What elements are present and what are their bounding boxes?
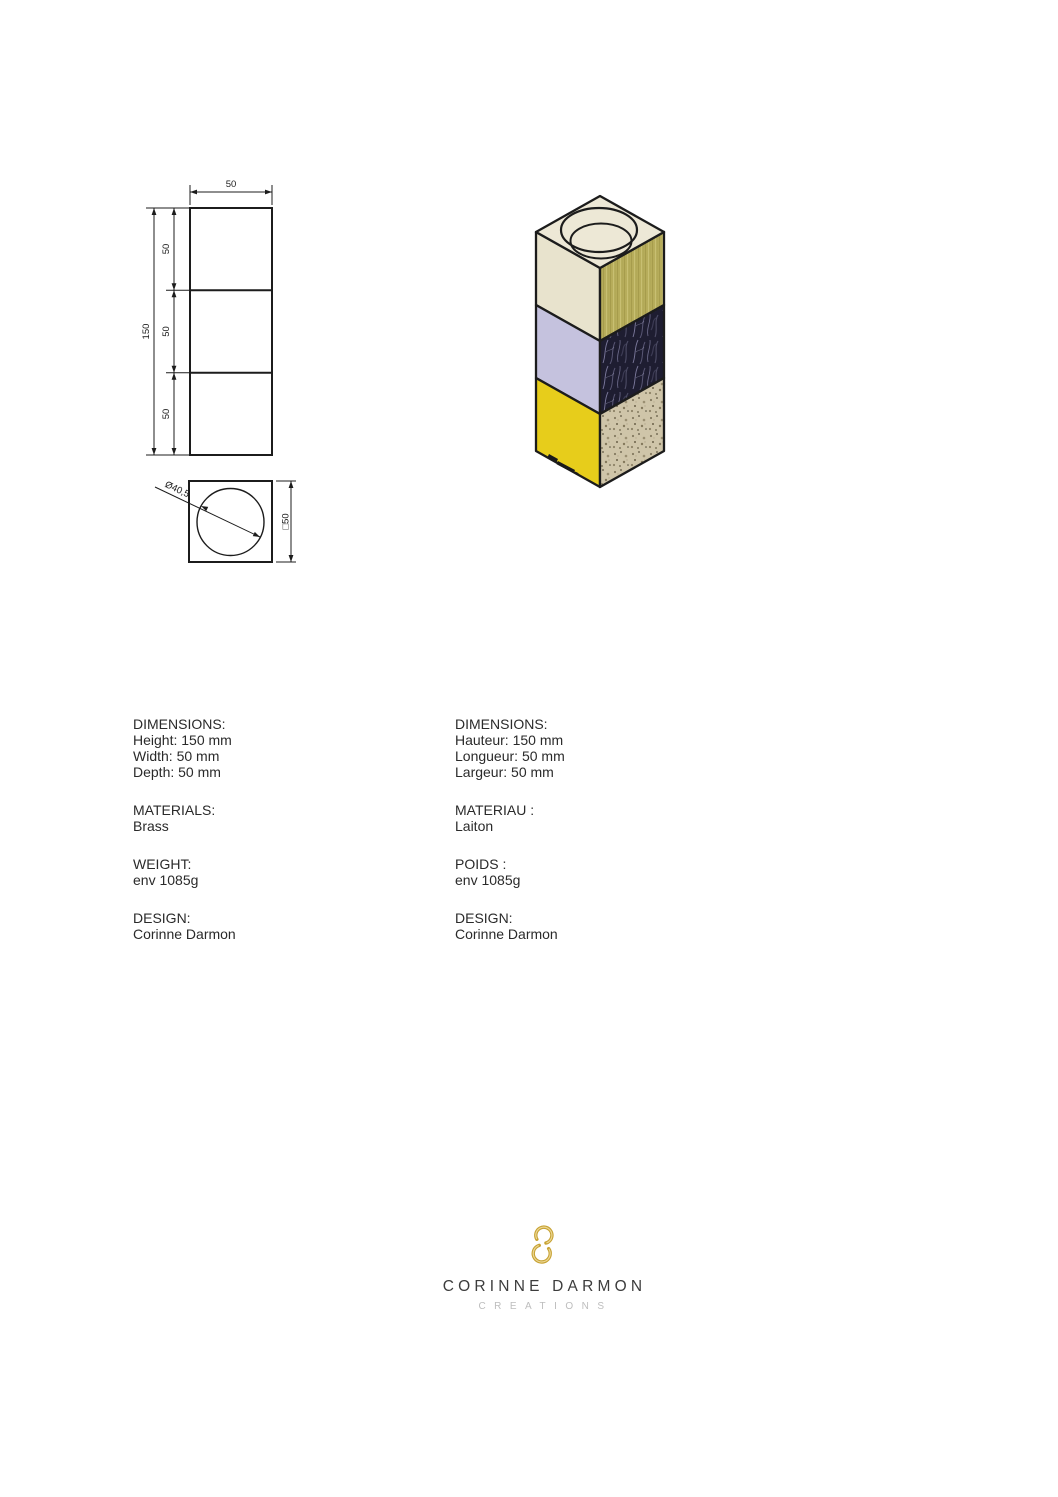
spec-title: DIMENSIONS: <box>455 716 565 732</box>
bottom-view-bore-circle <box>197 489 264 556</box>
spec-title: DESIGN: <box>455 910 565 926</box>
spec-block-materials: MATERIALS: Brass <box>133 802 236 834</box>
isometric-product-render <box>536 196 664 487</box>
spec-value: Corinne Darmon <box>455 926 565 942</box>
spec-value: Laiton <box>455 818 565 834</box>
spec-title: POIDS : <box>455 856 565 872</box>
spec-sheet-page: 50 150 50 50 50 Ø40,5 □50 <box>0 0 1058 1497</box>
spec-value: Brass <box>133 818 236 834</box>
front-total-height-label: 150 <box>141 324 152 340</box>
front-section2-label: 50 <box>161 326 172 337</box>
spec-title: DESIGN: <box>133 910 236 926</box>
spec-block-dimensions: DIMENSIONS: Hauteur: 150 mm Longueur: 50… <box>455 716 565 780</box>
spec-block-weight: WEIGHT: env 1085g <box>133 856 236 888</box>
spec-block-weight: POIDS : env 1085g <box>455 856 565 888</box>
brand-subtitle: CREATIONS <box>418 1301 673 1312</box>
spec-block-design: DESIGN: Corinne Darmon <box>133 910 236 942</box>
specs-french: DIMENSIONS: Hauteur: 150 mm Longueur: 50… <box>455 716 565 964</box>
spec-block-dimensions: DIMENSIONS: Height: 150 mm Width: 50 mm … <box>133 716 236 780</box>
bottom-view-square <box>189 481 272 562</box>
square-side-label: □50 <box>281 513 292 529</box>
gold-chain-links-icon <box>526 1220 560 1270</box>
front-section3-label: 50 <box>161 409 172 420</box>
spec-value: Height: 150 mm <box>133 732 236 748</box>
spec-block-materials: MATERIAU : Laiton <box>455 802 565 834</box>
spec-value: Depth: 50 mm <box>133 764 236 780</box>
front-view-body <box>190 208 272 455</box>
spec-value: Longueur: 50 mm <box>455 748 565 764</box>
specs-english: DIMENSIONS: Height: 150 mm Width: 50 mm … <box>133 716 236 964</box>
spec-value: Width: 50 mm <box>133 748 236 764</box>
spec-title: WEIGHT: <box>133 856 236 872</box>
spec-value: Corinne Darmon <box>133 926 236 942</box>
front-section1-label: 50 <box>161 244 172 255</box>
spec-value: Hauteur: 150 mm <box>455 732 565 748</box>
front-width-label: 50 <box>226 179 237 190</box>
spec-value: Largeur: 50 mm <box>455 764 565 780</box>
spec-block-design: DESIGN: Corinne Darmon <box>455 910 565 942</box>
spec-title: DIMENSIONS: <box>133 716 236 732</box>
bottom-view-drawing: Ø40,5 □50 <box>155 479 296 562</box>
spec-value: env 1085g <box>455 872 565 888</box>
brand-logo-block: CORINNE DARMON CREATIONS <box>413 1220 673 1312</box>
spec-title: MATERIAU : <box>455 802 565 818</box>
spec-value: env 1085g <box>133 872 236 888</box>
brand-name: CORINNE DARMON <box>416 1278 673 1296</box>
front-view-drawing: 50 150 50 50 50 <box>141 179 272 455</box>
spec-title: MATERIALS: <box>133 802 236 818</box>
